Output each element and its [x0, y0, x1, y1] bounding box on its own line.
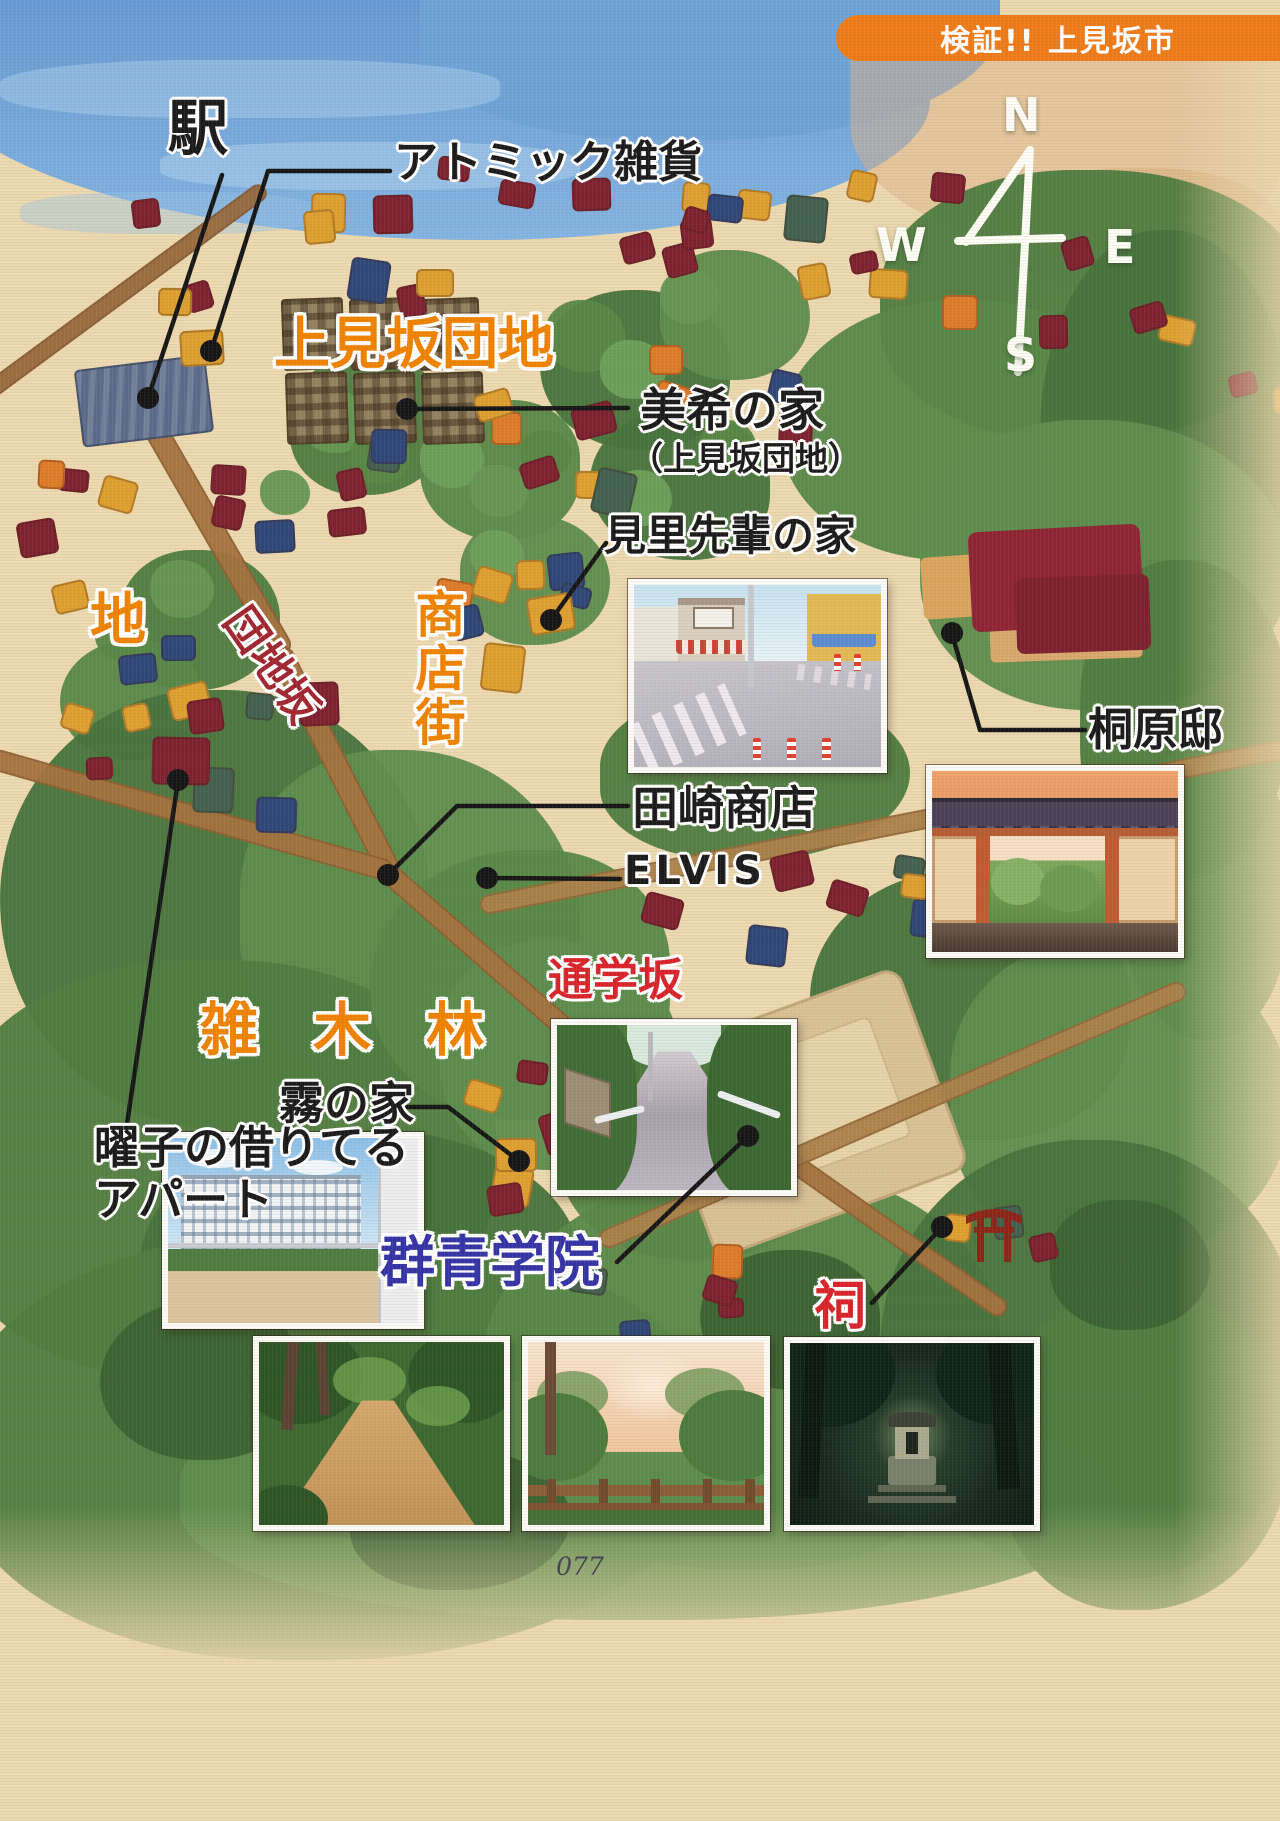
house-block — [186, 697, 226, 735]
page-number: 077 — [530, 1552, 630, 1581]
label-hokora: 祠 — [814, 1280, 866, 1335]
label-youko-apartment-line1: 曜子の借りてる — [94, 1124, 409, 1171]
photo-shotengai — [628, 579, 887, 773]
tree-puff — [660, 270, 720, 324]
house-block — [86, 757, 114, 782]
house-block — [179, 329, 225, 368]
house-block — [210, 464, 247, 496]
label-kamimisaka-danchi: 上見坂団地 — [274, 316, 554, 375]
photo-shrine-base — [888, 1456, 937, 1485]
label-elvis: ELVIS — [624, 850, 766, 892]
compass-south: S — [1004, 328, 1037, 382]
photo-gate-pillar — [1105, 831, 1119, 923]
house-block — [705, 193, 743, 223]
photo-stone-step — [878, 1485, 946, 1492]
photo-building — [634, 607, 683, 669]
house-block — [525, 592, 576, 637]
photo-cone — [834, 654, 841, 670]
header-badge: 検証!! 上見坂市 — [836, 15, 1280, 61]
photo-shrine-door — [906, 1432, 918, 1454]
tree-puff — [150, 560, 214, 618]
photo-cone — [787, 738, 796, 760]
label-gunjou-gakuin: 群青学院 — [380, 1234, 600, 1292]
label-miki-house: 美希の家 — [640, 386, 824, 434]
label-kiri-house: 霧の家 — [279, 1080, 414, 1127]
house-block — [515, 560, 545, 591]
house-block — [210, 494, 247, 532]
house-block — [479, 641, 526, 694]
photo-night-shrine — [784, 1337, 1040, 1531]
photo-cone — [822, 738, 831, 760]
house-block — [118, 652, 159, 686]
house-block — [930, 172, 967, 205]
photo-blue-awning — [812, 634, 876, 647]
photo-cone — [854, 654, 861, 670]
house-block — [370, 429, 407, 465]
label-station: 駅 — [168, 98, 228, 161]
house-block — [485, 1181, 524, 1218]
photo-gate-pillar — [976, 831, 990, 923]
house-block — [38, 459, 66, 489]
house-block — [796, 262, 832, 302]
house-block — [1039, 314, 1069, 348]
house-block — [372, 194, 413, 234]
photo-light-foliage — [406, 1386, 470, 1426]
photo-garden-tree — [991, 858, 1045, 905]
danchi-building — [285, 371, 349, 445]
photo-grass — [528, 1510, 764, 1525]
photo-gate-wall — [1114, 836, 1178, 923]
photo-pole — [648, 1032, 653, 1101]
house-block — [768, 849, 816, 894]
house-block — [326, 506, 367, 538]
house-block — [161, 635, 197, 662]
kirihara-house-roof — [1015, 574, 1152, 655]
house-block — [783, 194, 829, 244]
station-building — [74, 354, 215, 448]
house-block — [868, 268, 909, 301]
house-block — [618, 230, 658, 266]
label-atomic-zakka: アトミック雑貨 — [394, 140, 702, 186]
house-block — [845, 168, 879, 204]
photo-shrine-roof — [888, 1412, 937, 1427]
house-block — [649, 345, 683, 376]
house-block — [130, 197, 162, 229]
photo-light-foliage — [333, 1357, 407, 1405]
label-shoutengai: 商店街 — [410, 588, 463, 750]
compass-east: E — [1104, 220, 1135, 274]
house-block — [942, 295, 979, 330]
house-block — [50, 578, 91, 616]
photo-yellow-building — [807, 594, 881, 667]
label-chi: 地 — [90, 592, 146, 651]
photo-tree-trunk — [545, 1342, 557, 1455]
photo-forest-fence — [522, 1336, 770, 1531]
compass-north: N — [1002, 88, 1041, 142]
shrine-icon — [966, 1200, 1022, 1266]
photo-cone — [753, 738, 762, 760]
photo-pole — [748, 585, 754, 687]
bottom-paper-fade — [0, 1505, 1280, 1821]
compass-west: W — [876, 218, 927, 272]
label-kirihara-residence: 桐原邸 — [1088, 706, 1223, 753]
photo-fence — [168, 1243, 381, 1248]
house-block — [495, 1138, 537, 1173]
photo-forest-path — [253, 1336, 510, 1531]
house-block — [745, 924, 789, 968]
house-block — [255, 796, 297, 833]
town-map-page: 駅 アトミック雑貨 上見坂団地 美希の家 （上見坂団地） 見里先輩の家 地 団地… — [0, 0, 1280, 1821]
label-miki-house-note: （上見坂団地） — [630, 442, 861, 477]
house-block — [302, 209, 336, 245]
house-block — [416, 269, 454, 297]
photo-shop-sign — [693, 607, 734, 629]
house-block — [158, 288, 192, 316]
photo-gate-roof — [932, 798, 1178, 826]
photo-ground — [932, 923, 1178, 952]
photo-red-awning — [676, 640, 748, 655]
photo-fence-rail — [528, 1485, 764, 1496]
label-tsuugaku-zaka: 通学坂 — [548, 956, 683, 1003]
house-block — [96, 474, 139, 516]
photo-tsuugakuzaka — [551, 1019, 797, 1196]
house-block — [254, 519, 296, 554]
label-zoukibayashi: 雑木林 — [200, 1000, 539, 1061]
right-paper-fade — [1175, 0, 1280, 1821]
label-misato-senpai-house: 見里先輩の家 — [604, 514, 856, 558]
house-block — [346, 256, 392, 305]
tree-puff — [260, 470, 310, 515]
photo-kirihara-gate — [926, 765, 1184, 958]
house-block — [152, 736, 211, 785]
photo-stone-step — [868, 1496, 956, 1503]
label-youko-apartment-line2: アパート — [94, 1176, 273, 1223]
house-block — [15, 517, 60, 559]
label-tasaki-shouten: 田崎商店 — [632, 784, 816, 832]
photo-gate-beam — [932, 827, 1178, 836]
